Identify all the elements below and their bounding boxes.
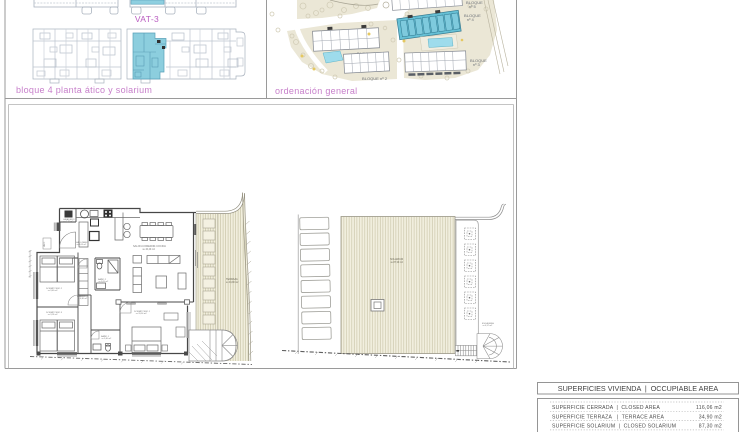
svg-text:SUPERFICIE SOLARIUM | CLOSED: SUPERFICIE SOLARIUM | CLOSED SOLARIUM — [552, 424, 676, 430]
svg-text:DORMITORIO 1: DORMITORIO 1 — [134, 311, 151, 313]
svg-text:DORMITORIO 3: DORMITORIO 3 — [46, 312, 63, 314]
svg-text:su 1,71 m2: su 1,71 m2 — [63, 221, 73, 223]
svg-text:SUPERFICIES VIVIENDA | OCCUP: SUPERFICIES VIVIENDA | OCCUPIABLE AREA — [558, 384, 719, 393]
svg-text:DORMITORIO 2: DORMITORIO 2 — [46, 288, 63, 290]
svg-text:SUPERFICIE CERRADA | CLOSED: SUPERFICIE CERRADA | CLOSED AREA — [552, 405, 660, 411]
svg-text:87,30 m2: 87,30 m2 — [699, 424, 722, 430]
svg-text:su 40,40 m2: su 40,40 m2 — [143, 249, 156, 251]
svg-text:su 34,90 m2: su 34,90 m2 — [226, 282, 239, 284]
svg-text:nº 3: nº 3 — [473, 62, 481, 67]
svg-text:SOLARIUM: SOLARIUM — [390, 258, 403, 261]
svg-text:SUPERFICIE TERRAZA | TERRAC: SUPERFICIE TERRAZA | TERRACE AREA — [552, 414, 664, 420]
svg-text:su 3,40 m2: su 3,40 m2 — [101, 338, 111, 340]
svg-text:su 87,30 m2: su 87,30 m2 — [391, 262, 404, 264]
svg-text:ordenación general: ordenación general — [275, 86, 357, 96]
svg-text:nº 4: nº 4 — [467, 17, 475, 22]
svg-text:SALON-COMEDOR-COCINA: SALON-COMEDOR-COCINA — [133, 245, 166, 248]
svg-text:BLOQUE nº 2: BLOQUE nº 2 — [362, 76, 388, 81]
svg-text:su 4,57 m2: su 4,57 m2 — [482, 325, 492, 327]
svg-text:nº 5: nº 5 — [469, 4, 477, 9]
svg-text:su 9,40 m2: su 9,40 m2 — [48, 290, 58, 292]
svg-text:su 20,56 m2: su 20,56 m2 — [136, 313, 147, 315]
svg-text:VAT-3: VAT-3 — [135, 14, 159, 24]
svg-text:bloque 4 planta ático y solari: bloque 4 planta ático y solarium — [16, 85, 152, 95]
svg-text:116,06 m2: 116,06 m2 — [696, 405, 722, 411]
svg-text:su 3,03 m2: su 3,03 m2 — [76, 244, 86, 246]
svg-text:su 9,18 m2: su 9,18 m2 — [48, 314, 58, 316]
svg-text:TERRAZA: TERRAZA — [226, 278, 238, 281]
svg-text:34,90 m2: 34,90 m2 — [699, 414, 722, 420]
